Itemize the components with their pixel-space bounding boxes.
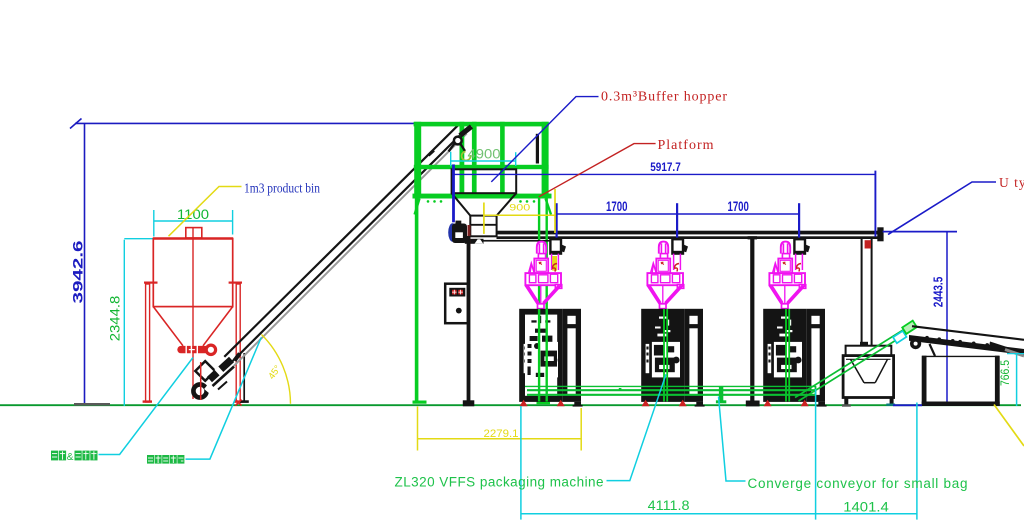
svg-text:Platform: Platform (658, 138, 714, 153)
svg-text:2443.5: 2443.5 (931, 277, 946, 308)
svg-text:1401.4: 1401.4 (843, 499, 889, 515)
svg-text:1700: 1700 (727, 198, 749, 214)
svg-text:2344.8: 2344.8 (107, 296, 123, 342)
svg-text:4111.8: 4111.8 (648, 497, 690, 513)
svg-text:900: 900 (509, 203, 530, 214)
svg-text:ZL320 VFFS packaging machine: ZL320 VFFS packaging machine (395, 475, 604, 490)
svg-text:45°: 45° (266, 363, 283, 381)
svg-text:1700: 1700 (606, 198, 628, 214)
svg-text:U type screw conveyor: U type screw conveyor (999, 175, 1024, 190)
svg-text:&: & (67, 452, 74, 463)
svg-text:766.5: 766.5 (998, 360, 1012, 386)
svg-text:Converge conveyor for small ba: Converge conveyor for small bag (748, 476, 968, 491)
svg-text:4900: 4900 (468, 145, 501, 161)
svg-text:1100: 1100 (177, 206, 209, 222)
svg-text:3942.6: 3942.6 (70, 240, 86, 303)
svg-text:1m3 product bin: 1m3 product bin (244, 181, 320, 196)
svg-text:0.3m³Buffer hopper: 0.3m³Buffer hopper (601, 90, 727, 105)
svg-text:2279.1: 2279.1 (484, 428, 519, 440)
svg-text:5917.7: 5917.7 (650, 160, 681, 174)
